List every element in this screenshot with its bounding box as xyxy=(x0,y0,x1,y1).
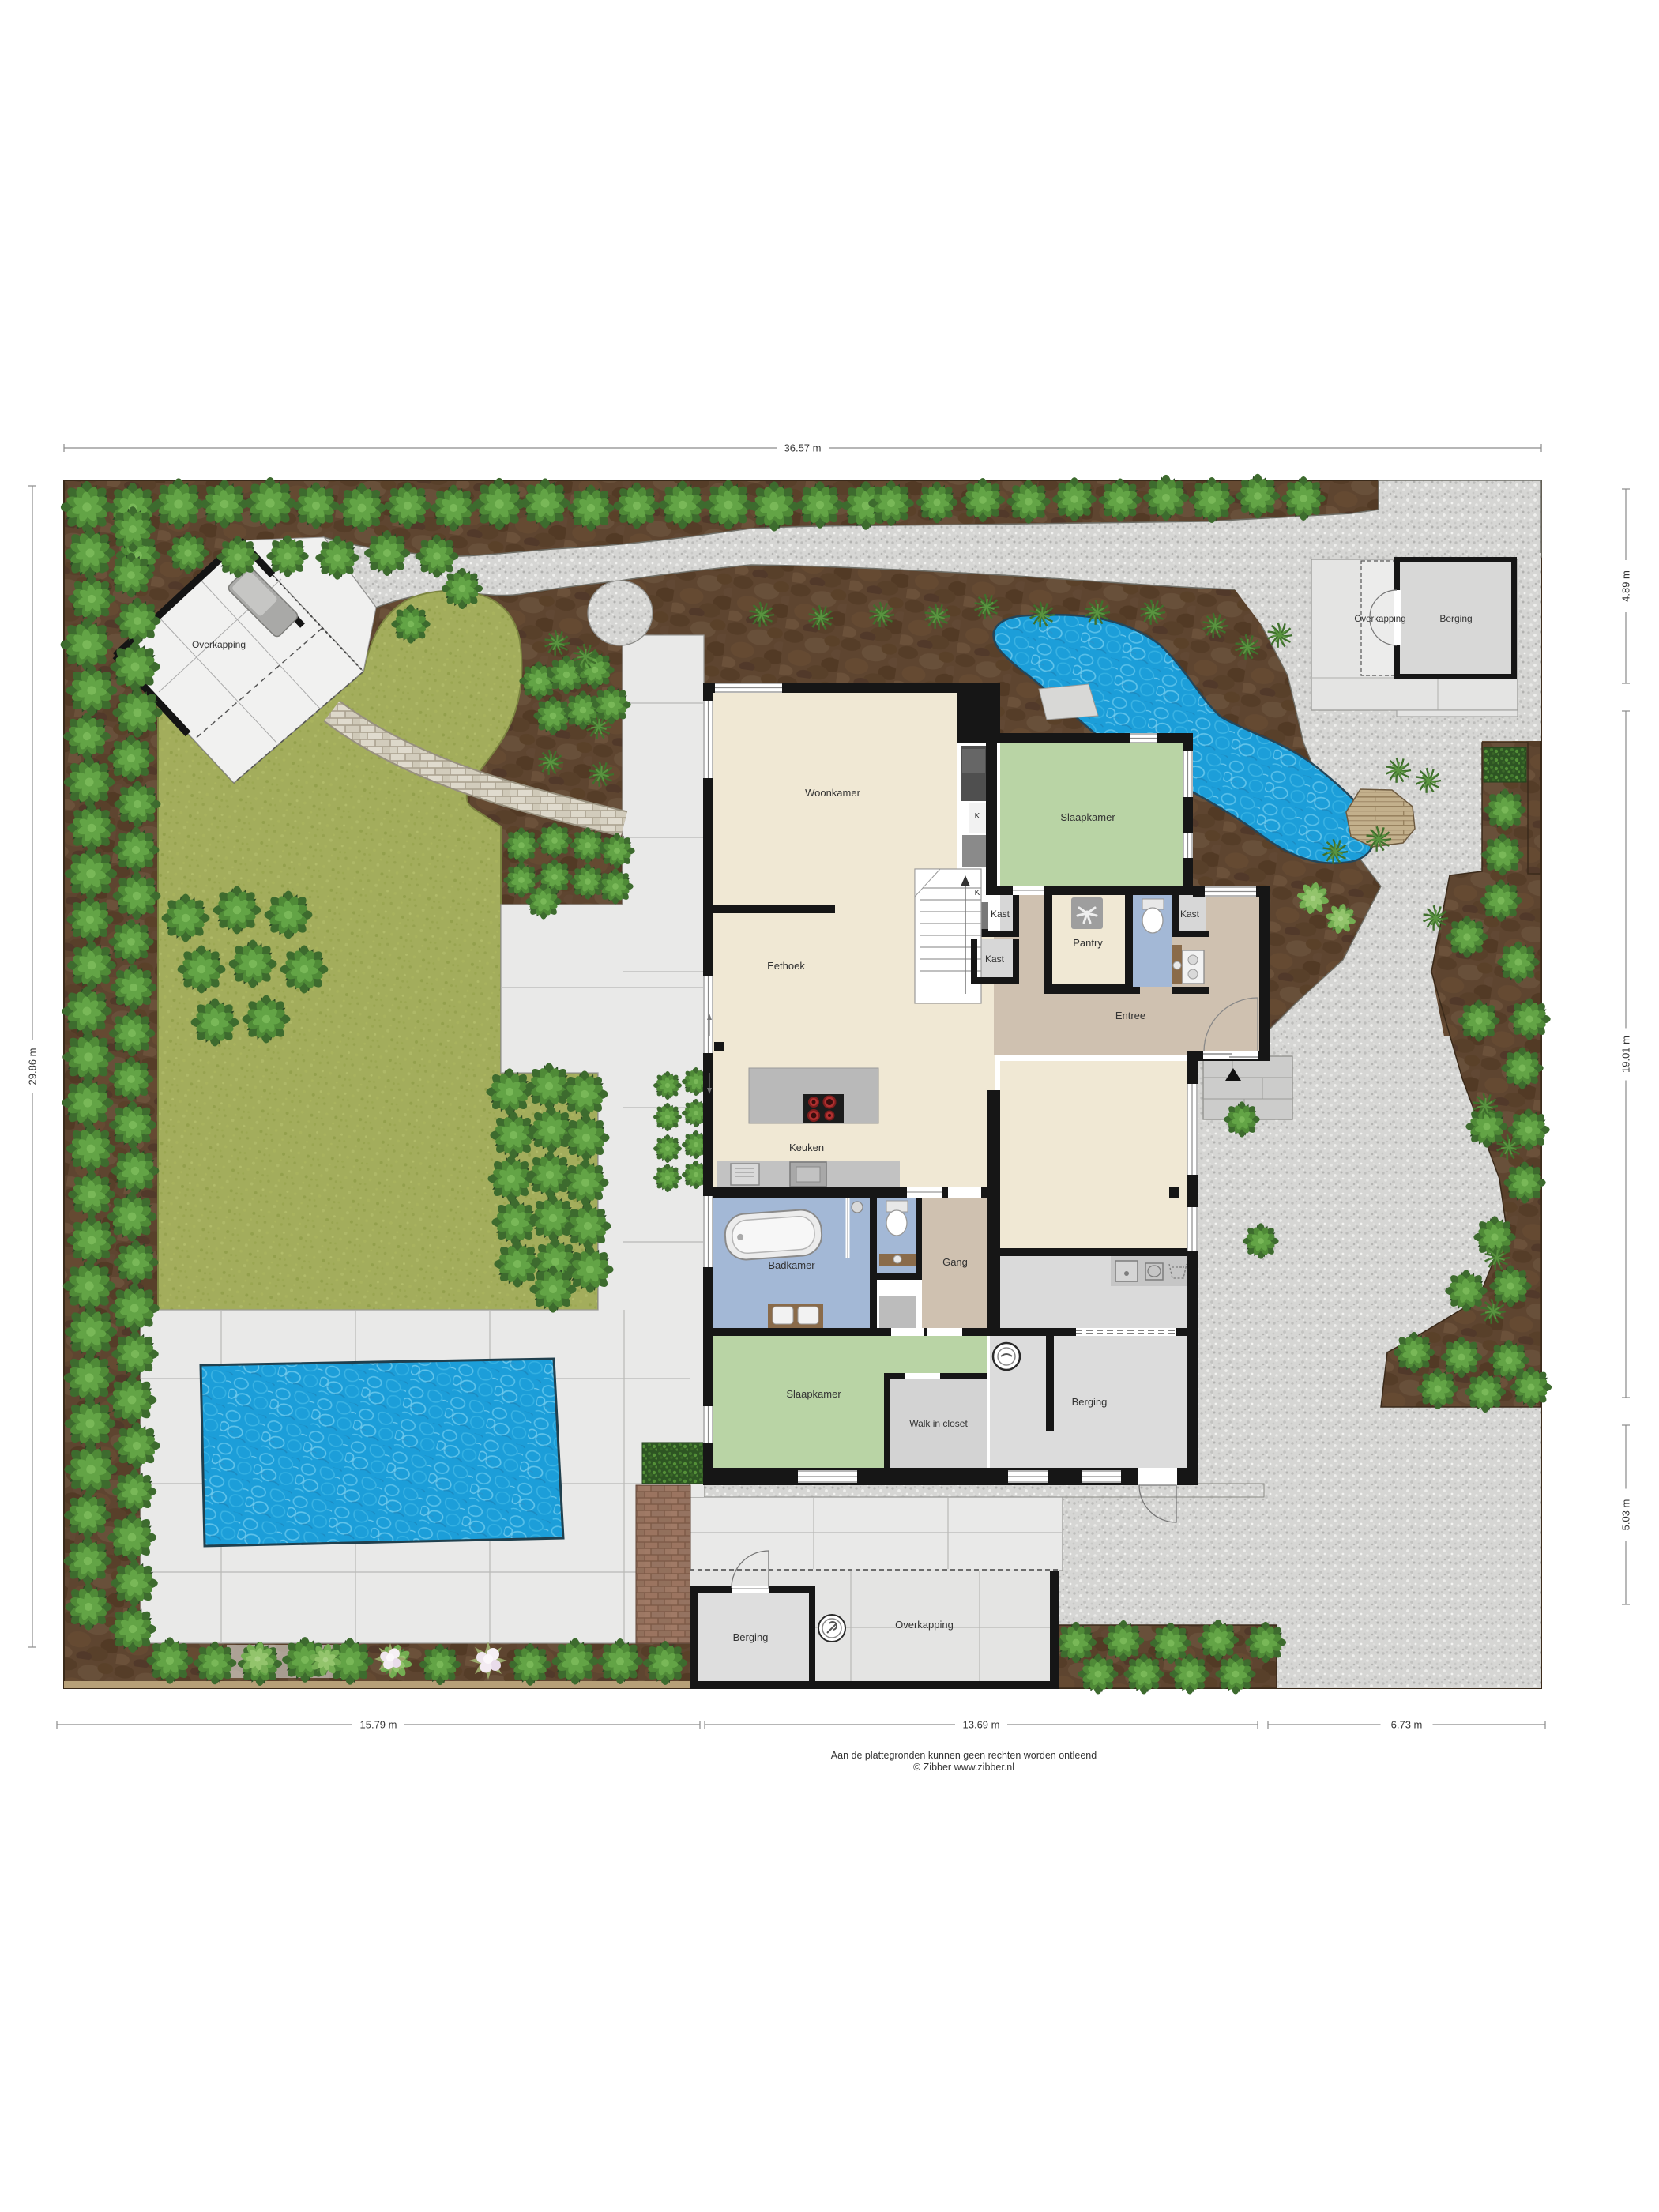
svg-text:Berging: Berging xyxy=(1439,613,1472,624)
svg-text:K: K xyxy=(975,889,980,897)
svg-text:Overkapping: Overkapping xyxy=(1354,615,1405,624)
svg-text:Entree: Entree xyxy=(1115,1010,1145,1021)
svg-text:Kast: Kast xyxy=(991,908,1010,920)
svg-text:Overkapping: Overkapping xyxy=(895,1619,954,1631)
svg-text:5.03 m: 5.03 m xyxy=(1620,1499,1632,1531)
svg-text:Badkamer: Badkamer xyxy=(768,1259,815,1271)
svg-text:Aan de plattegronden kunnen ge: Aan de plattegronden kunnen geen rechten… xyxy=(831,1750,1097,1761)
svg-text:Walk in closet: Walk in closet xyxy=(909,1418,968,1429)
svg-text:© Zibber www.zibber.nl: © Zibber www.zibber.nl xyxy=(913,1762,1014,1773)
svg-text:Kast: Kast xyxy=(1180,908,1200,920)
svg-text:Overkapping: Overkapping xyxy=(192,639,246,650)
svg-text:Berging: Berging xyxy=(1072,1396,1108,1408)
svg-text:13.69 m: 13.69 m xyxy=(963,1719,1000,1731)
svg-text:15.79 m: 15.79 m xyxy=(360,1719,397,1731)
svg-text:Slaapkamer: Slaapkamer xyxy=(1060,811,1115,823)
svg-text:Gang: Gang xyxy=(942,1256,968,1268)
svg-text:29.86 m: 29.86 m xyxy=(27,1048,39,1085)
svg-text:Kast: Kast xyxy=(985,954,1005,965)
svg-text:36.57 m: 36.57 m xyxy=(784,442,822,454)
svg-text:19.01 m: 19.01 m xyxy=(1620,1036,1632,1073)
svg-text:K: K xyxy=(975,812,980,821)
svg-text:Eethoek: Eethoek xyxy=(767,960,805,972)
svg-text:6.73 m: 6.73 m xyxy=(1391,1719,1423,1731)
svg-text:Slaapkamer: Slaapkamer xyxy=(786,1388,841,1400)
svg-text:Pantry: Pantry xyxy=(1073,937,1103,949)
svg-text:Keuken: Keuken xyxy=(789,1142,824,1153)
svg-text:4.89 m: 4.89 m xyxy=(1620,570,1632,602)
svg-text:Woonkamer: Woonkamer xyxy=(805,787,861,799)
svg-text:Berging: Berging xyxy=(733,1631,769,1643)
